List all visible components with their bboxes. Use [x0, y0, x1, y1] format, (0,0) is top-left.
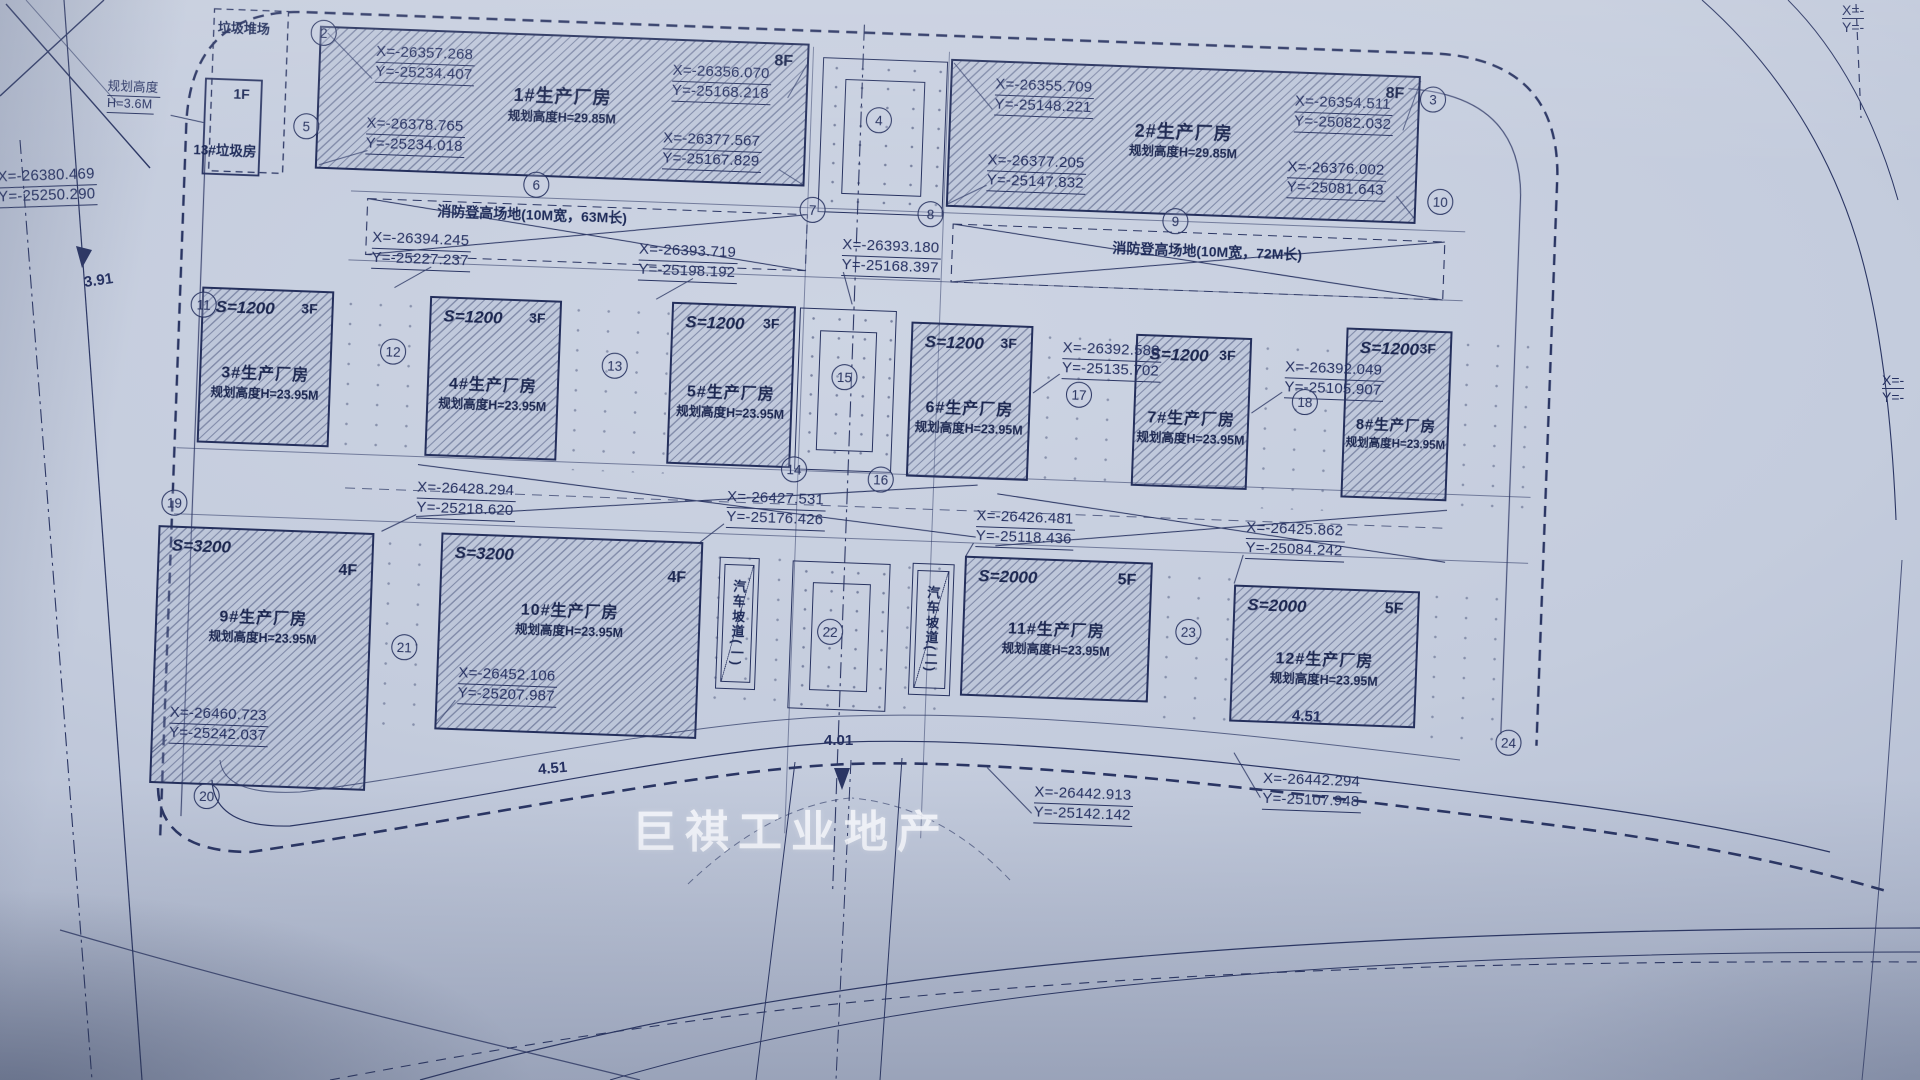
road-width-bottom-center: 4.01	[824, 732, 853, 749]
watermark: 巨祺工业地产	[632, 796, 950, 860]
road-linework	[0, 0, 1920, 1080]
truncated-coordinate-top-right: X=- Y=-	[1842, 2, 1864, 35]
entrance-arrow-icon	[834, 768, 850, 790]
road-width-bottom-left: 4.51	[537, 759, 568, 778]
truncated-coordinate-right-middle: X=- Y=-	[1882, 372, 1904, 405]
road-direction-arrow-icon	[76, 246, 92, 268]
blueprint-photo: 汽车坡道(一) 汽车坡道(二) 8F 1#生产厂房 规划高度H=29.85M 8…	[0, 0, 1920, 1080]
road-width-bottom-right: 4.51	[1292, 707, 1322, 726]
